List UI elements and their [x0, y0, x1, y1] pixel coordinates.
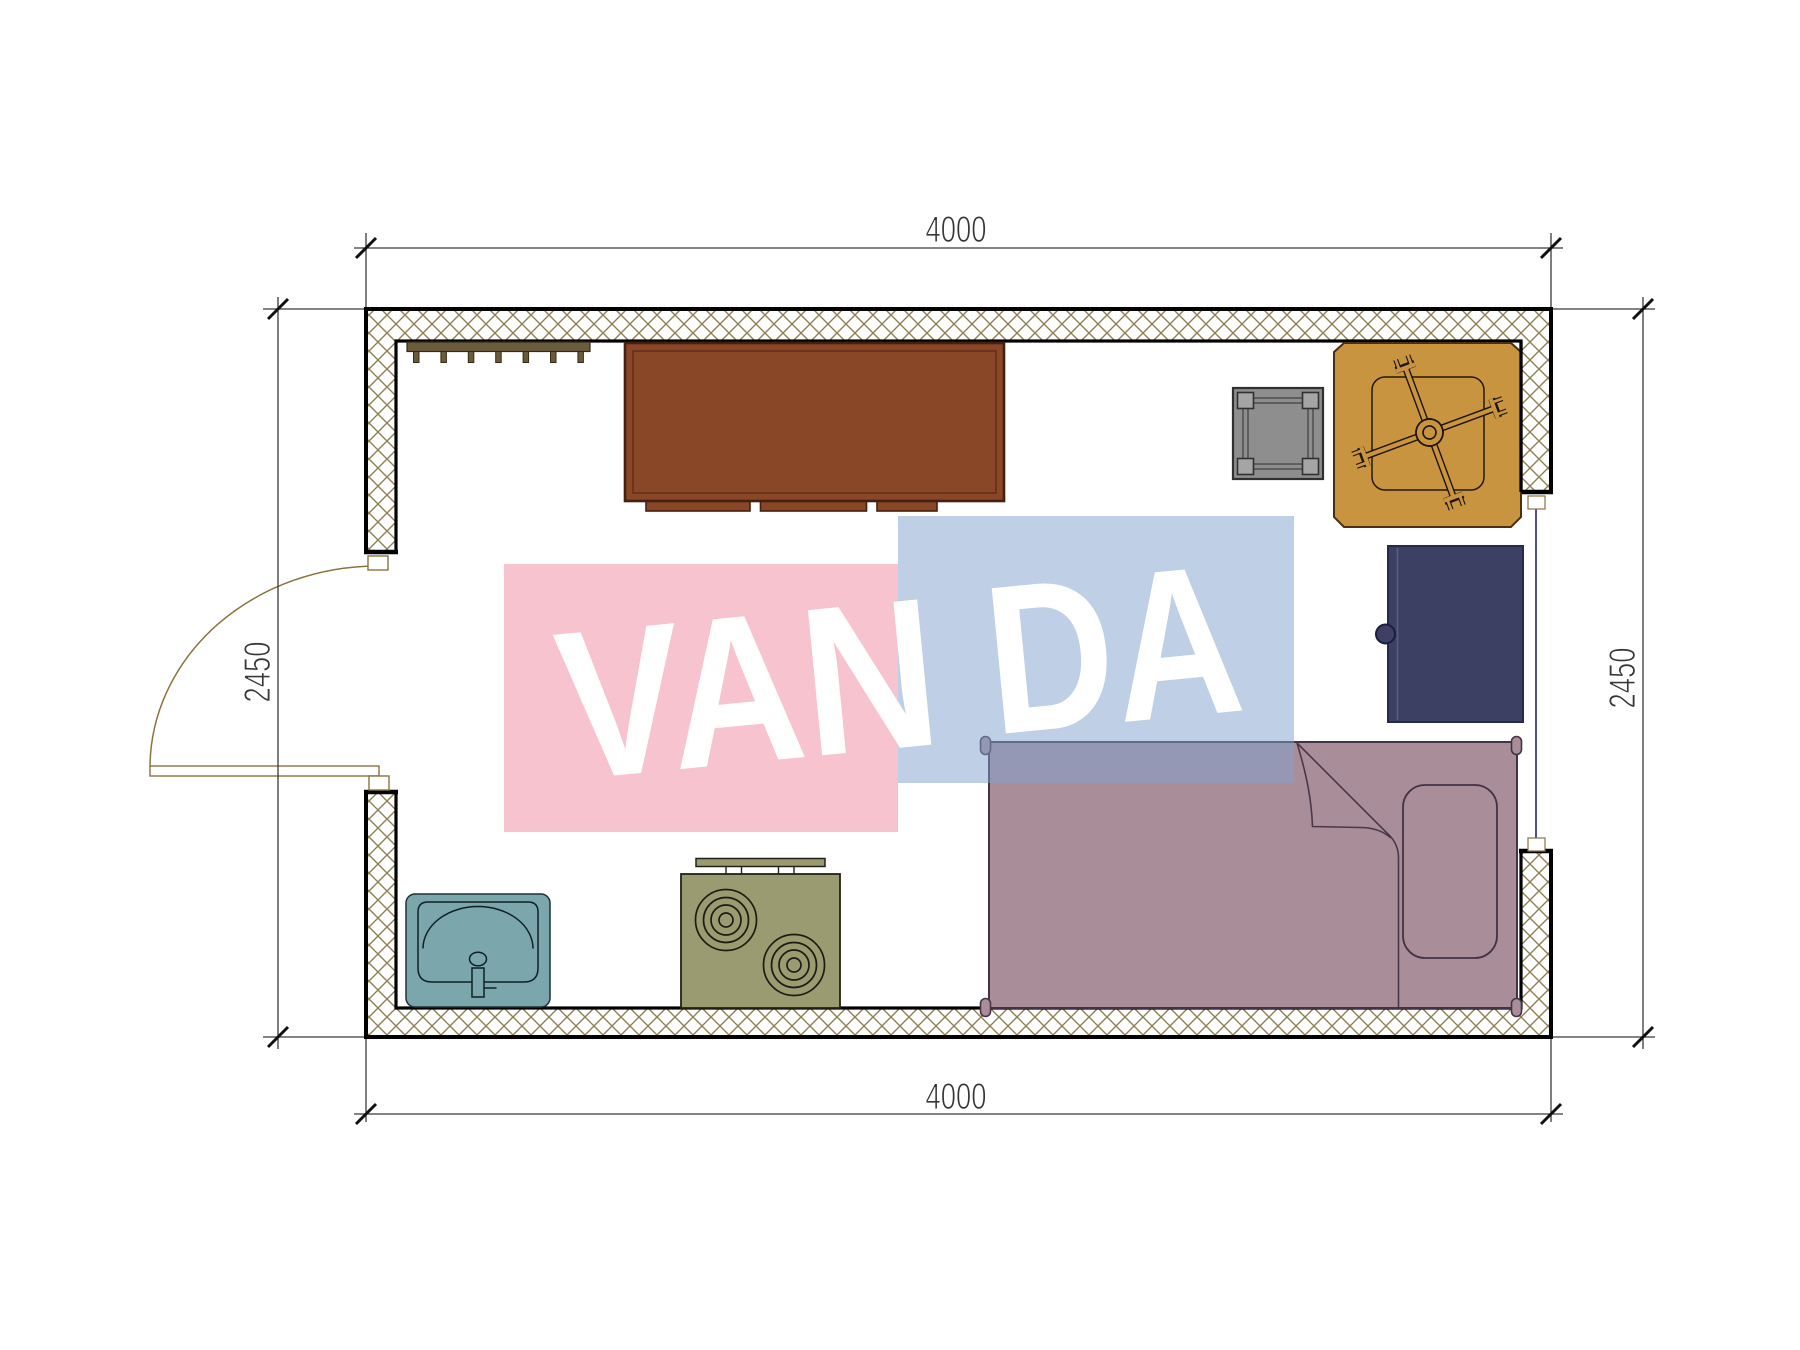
svg-text:2450: 2450 [237, 642, 278, 703]
svg-text:4000: 4000 [926, 1076, 987, 1117]
svg-text:4000: 4000 [926, 209, 987, 250]
svg-text:VAN: VAN [547, 552, 948, 825]
svg-text:DA: DA [976, 519, 1252, 779]
svg-text:2450: 2450 [1602, 648, 1643, 709]
